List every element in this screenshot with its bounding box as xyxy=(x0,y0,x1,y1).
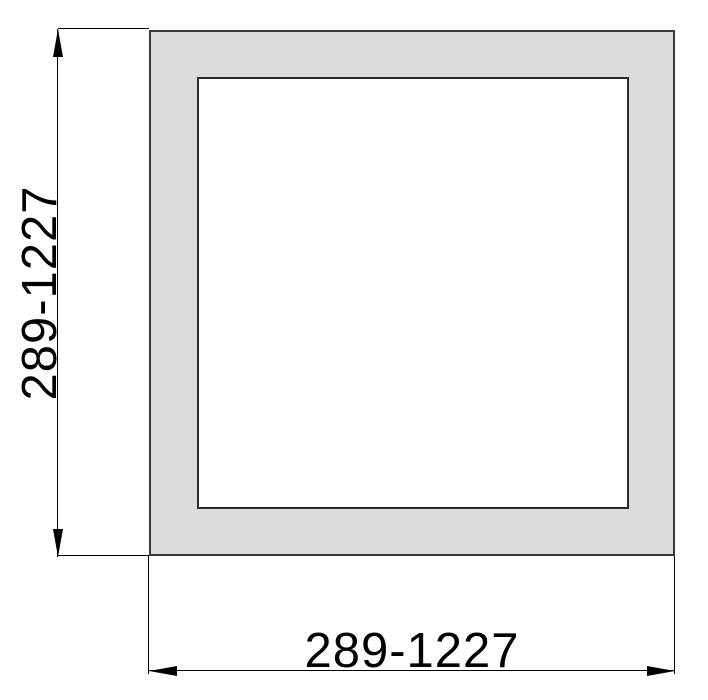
bottom-left-extension-line xyxy=(58,555,149,556)
height-dimension-label: 289-1227 xyxy=(15,173,65,413)
technical-drawing-canvas: 289-1227 289-1227 xyxy=(0,0,708,700)
arrowhead-up-icon xyxy=(53,29,63,57)
width-dimension-label: 289-1227 xyxy=(149,626,675,676)
arrowhead-down-icon xyxy=(53,529,63,557)
top-extension-line xyxy=(58,28,149,29)
tube-bore-profile xyxy=(197,77,629,509)
